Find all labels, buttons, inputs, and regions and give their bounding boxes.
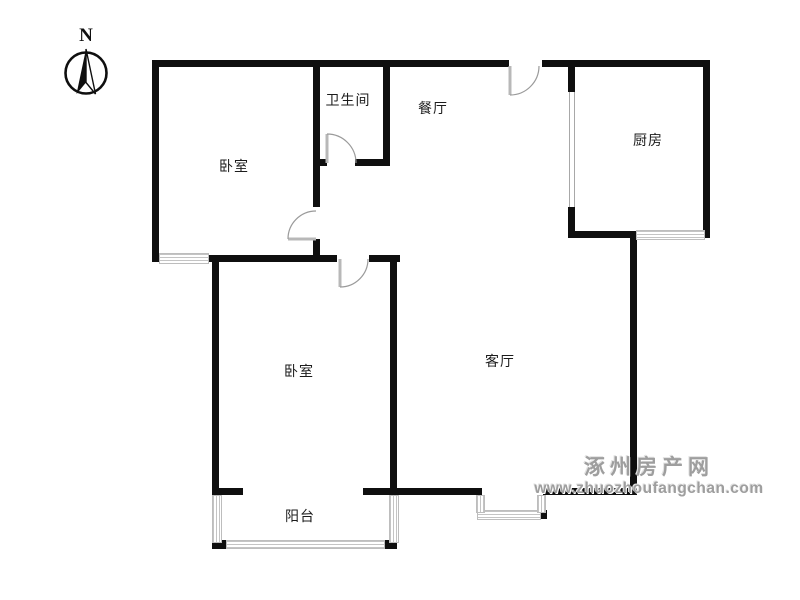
room-label-bedroom-north: 卧室 — [219, 156, 249, 176]
bay-window-jamb-west — [476, 495, 485, 513]
bathroom-door-arc — [327, 134, 356, 163]
wall-kitchen-bottom — [568, 231, 637, 238]
wall-bedroom-south-top-east — [369, 255, 400, 262]
bay-window-jamb-east — [537, 495, 546, 513]
wall-west-bedroom-north — [152, 60, 159, 262]
compass-north-label: N — [79, 25, 93, 46]
wall-bedroom-south-west — [212, 255, 219, 495]
watermark-site-name: 涿州房产网 — [516, 455, 782, 480]
north-compass-icon: N — [55, 16, 117, 108]
bay-window-sill — [477, 510, 541, 520]
room-label-dining: 餐厅 — [418, 98, 448, 118]
wall-top-west — [152, 60, 509, 67]
balcony-glazing-south — [226, 540, 385, 549]
balcony-glazing-west — [212, 495, 222, 543]
bedroom-north-door-arc — [288, 211, 316, 239]
wall-south-center — [363, 488, 482, 495]
wall-kitchen-west-lower — [568, 207, 575, 238]
wall-bedroom-south-east — [390, 262, 397, 488]
kitchen-window — [636, 230, 705, 240]
room-label-balcony: 阳台 — [285, 506, 315, 526]
entry-door-arc — [510, 66, 539, 95]
floor-plan: N 卧室 卫生间 餐厅 厨房 卧室 客厅 阳台 涿州房产网 www.zhuozh… — [0, 0, 800, 600]
room-label-living: 客厅 — [485, 351, 515, 371]
wall-bathroom-east — [383, 60, 390, 166]
balcony-glazing-east — [389, 495, 399, 543]
watermark: 涿州房产网 www.zhuozhoufangchan.com — [516, 455, 782, 497]
watermark-site-url: www.zhuozhoufangchan.com — [516, 480, 782, 497]
kitchen-sliding-door — [569, 92, 575, 207]
door-symbols — [0, 0, 800, 600]
bedroom-north-window — [159, 253, 209, 264]
wall-bedroom-north-east-lower — [313, 239, 320, 262]
wall-kitchen-east — [703, 60, 710, 238]
bedroom-south-door-arc — [340, 259, 368, 287]
room-label-bathroom: 卫生间 — [326, 90, 371, 110]
room-label-kitchen: 厨房 — [633, 130, 663, 150]
wall-bedroom-north-east-upper — [313, 60, 320, 207]
room-label-bedroom-south: 卧室 — [284, 361, 314, 381]
wall-kitchen-west-upper — [568, 60, 575, 92]
